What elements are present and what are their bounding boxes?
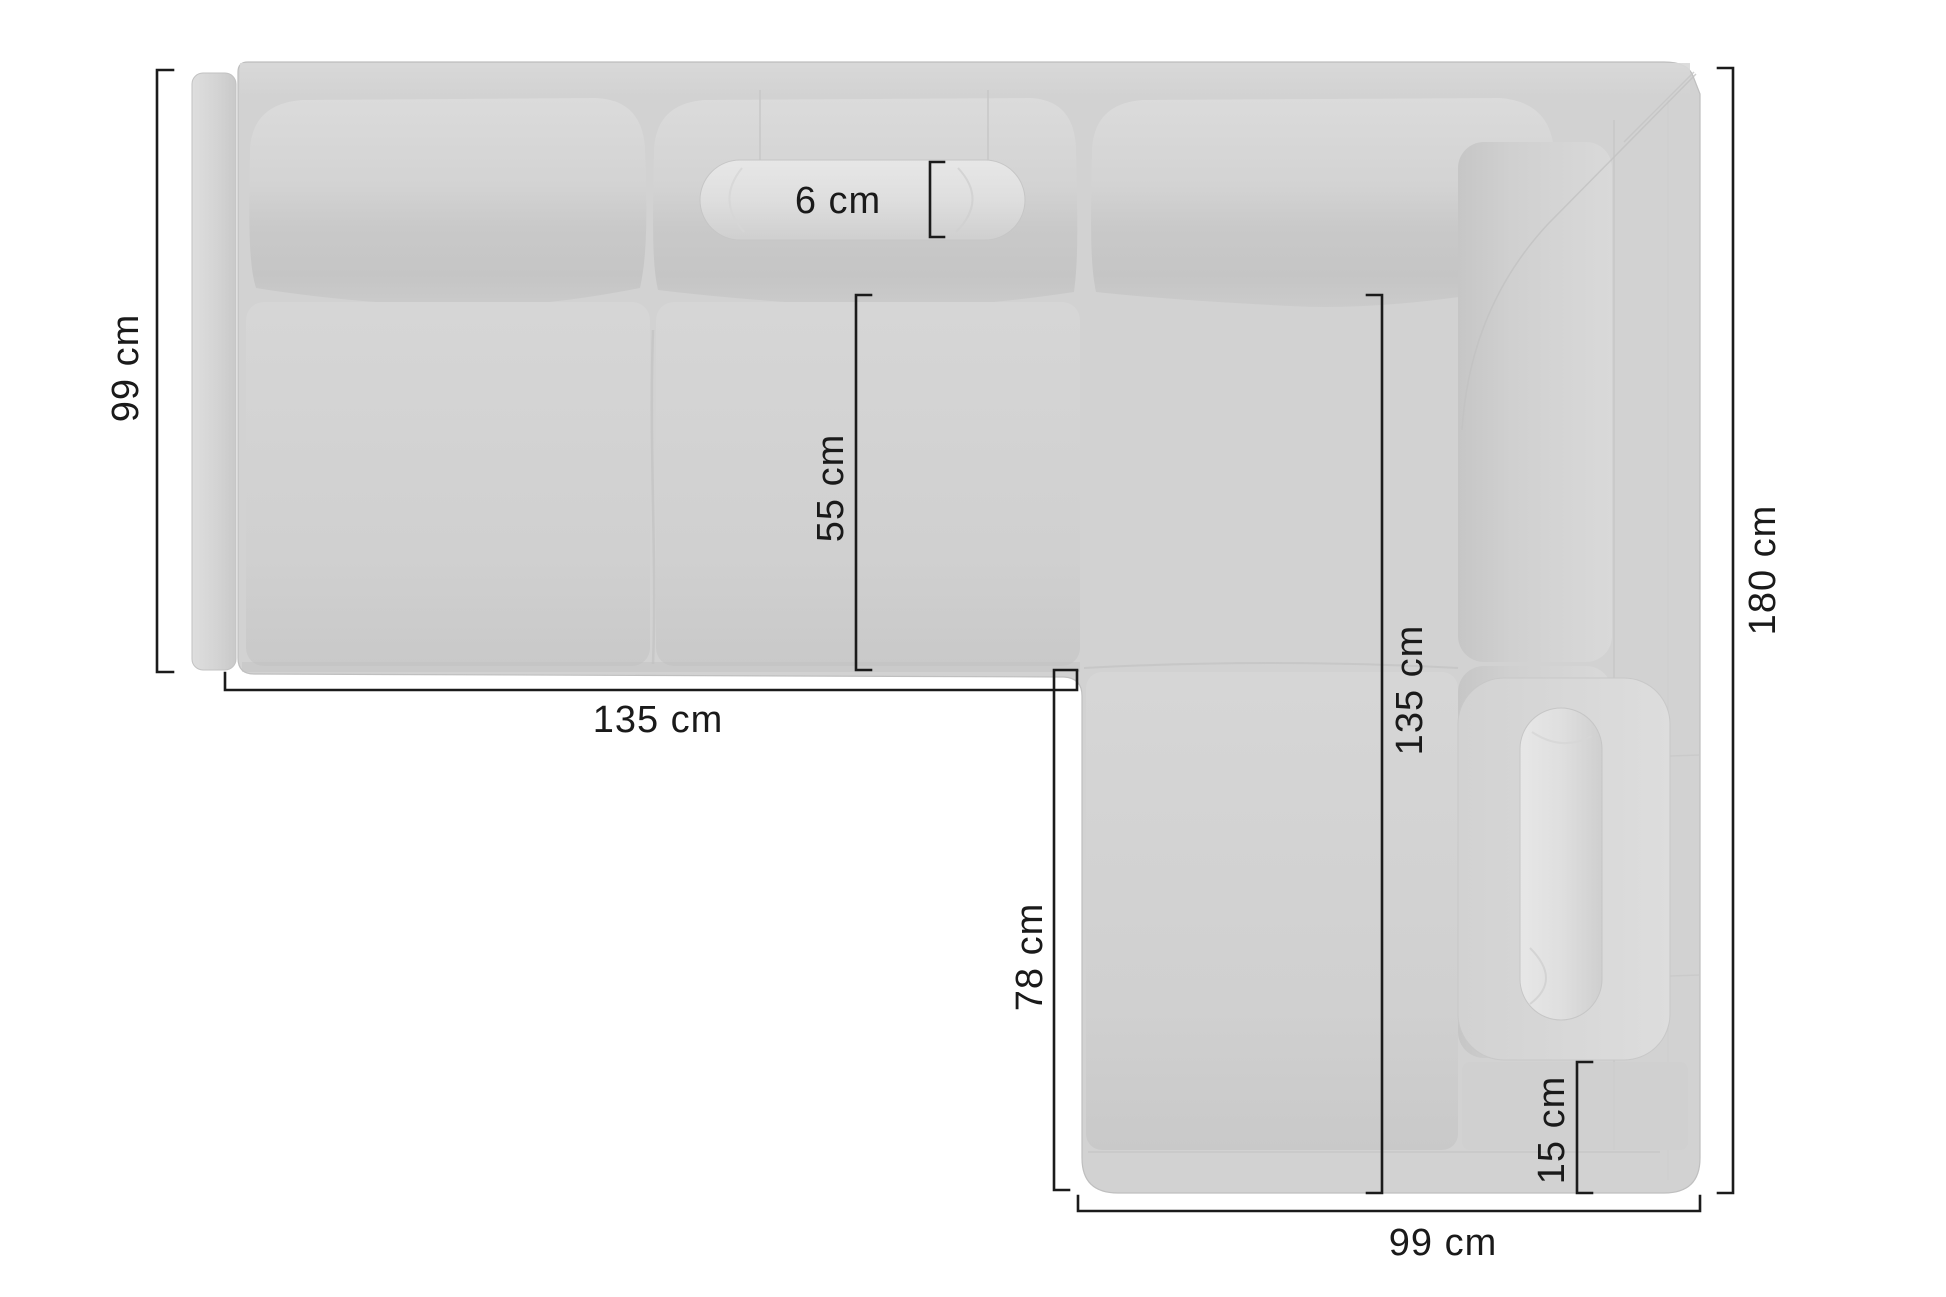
back-shell-strip bbox=[240, 63, 1690, 97]
sofa-illustration bbox=[192, 62, 1700, 1193]
dim-left-section-width: 135 cm bbox=[225, 671, 1077, 741]
dim-line-99-left bbox=[157, 70, 173, 672]
dim-label-180: 180 cm bbox=[1742, 505, 1784, 636]
dim-chaise-width: 99 cm bbox=[1078, 1196, 1700, 1264]
back-cushion-right-upper bbox=[1458, 142, 1612, 662]
back-cushion-left bbox=[249, 98, 646, 307]
bolster-pillow-right bbox=[1520, 708, 1602, 1020]
dim-label-99-bottom: 99 cm bbox=[1389, 1222, 1497, 1264]
dim-line-99-bottom bbox=[1078, 1196, 1700, 1211]
dim-label-135-bottom: 135 cm bbox=[593, 699, 724, 741]
dim-chaise-inner-length: 78 cm bbox=[1009, 670, 1077, 1190]
dim-label-55: 55 cm bbox=[810, 434, 852, 542]
seat-front-shadow bbox=[242, 662, 1080, 672]
chaise-front-band bbox=[1462, 1062, 1688, 1150]
dim-left-section-depth: 99 cm bbox=[105, 70, 173, 672]
seat-cushion-left bbox=[246, 302, 650, 666]
dim-label-78: 78 cm bbox=[1009, 903, 1051, 1011]
dim-label-6: 6 cm bbox=[795, 180, 881, 222]
dim-right-section-length: 180 cm bbox=[1718, 68, 1784, 1193]
dim-label-99-left: 99 cm bbox=[105, 314, 147, 422]
dim-label-135-right: 135 cm bbox=[1389, 625, 1431, 756]
seat-cushion-middle bbox=[656, 302, 1080, 666]
dim-label-15: 15 cm bbox=[1531, 1076, 1573, 1184]
dim-line-180 bbox=[1718, 68, 1733, 1193]
sofa-dimension-diagram: 99 cm 6 cm 55 cm 135 cm 135 cm 78 cm 180… bbox=[0, 0, 1946, 1297]
dim-line-78 bbox=[1054, 670, 1077, 1190]
left-armrest bbox=[192, 73, 236, 670]
